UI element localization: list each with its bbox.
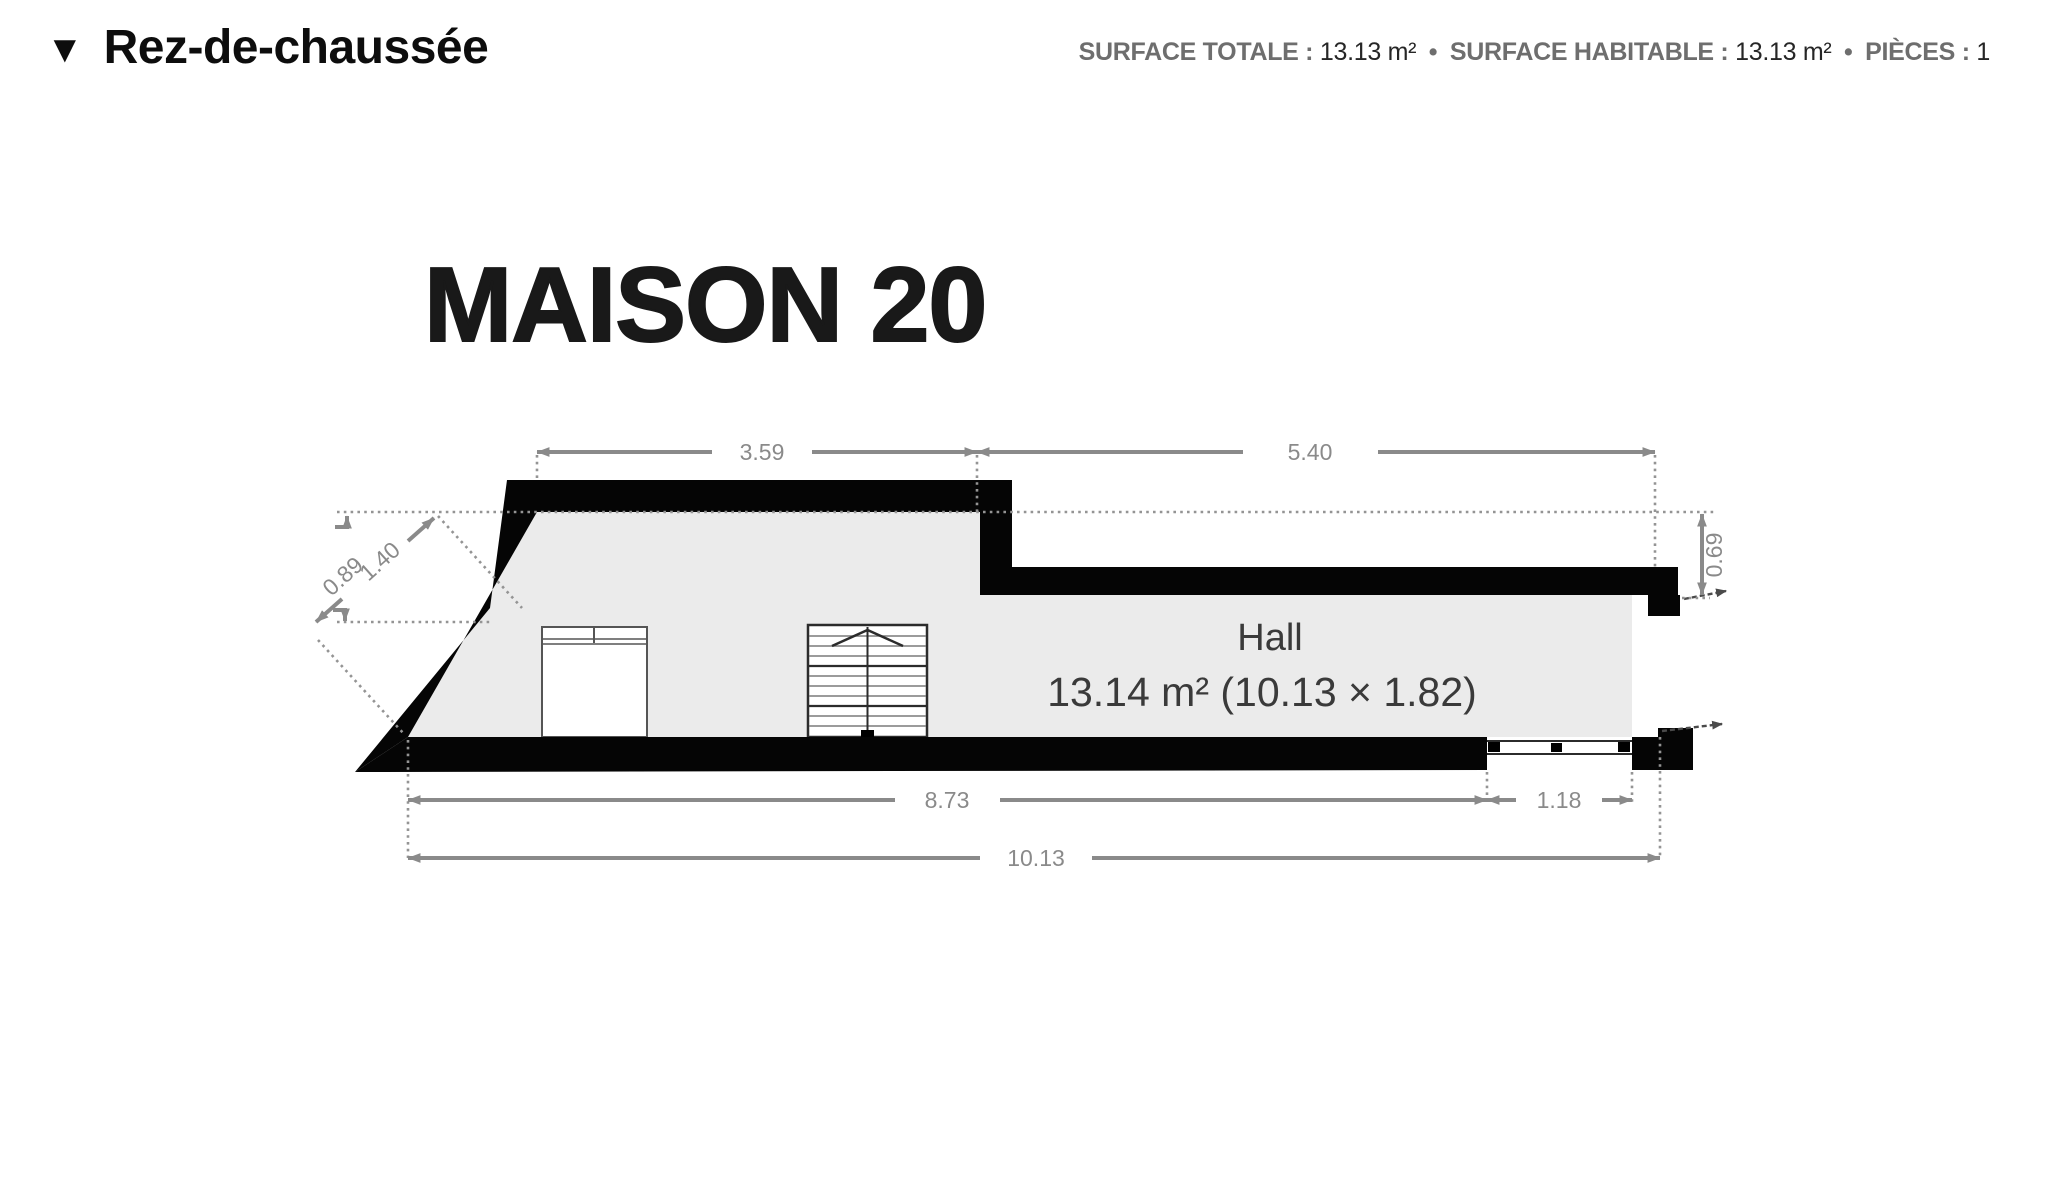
dim-bottom-total: 10.13 [1007,845,1065,871]
floorplan-drawing: 3.59 5.40 8.73 1.18 10.13 0.69 1.40 0.89… [0,0,2045,1200]
cabinet-symbol [542,627,647,737]
staircase-symbol [808,625,927,737]
dim-diag-outer: 0.89 [317,551,368,600]
dim-top-left: 3.59 [740,439,785,465]
dim-diag-inner: 1.40 [354,536,405,585]
dim-top-right: 5.40 [1288,439,1333,465]
dim-bottom-window: 1.18 [1537,787,1582,813]
room-area: 13.14 m² (10.13 × 1.82) [1047,669,1477,715]
room-name: Hall [1237,617,1302,659]
dim-bottom-main: 8.73 [925,787,970,813]
window-symbol [1487,741,1632,754]
dim-right-offset: 0.69 [1701,533,1727,578]
